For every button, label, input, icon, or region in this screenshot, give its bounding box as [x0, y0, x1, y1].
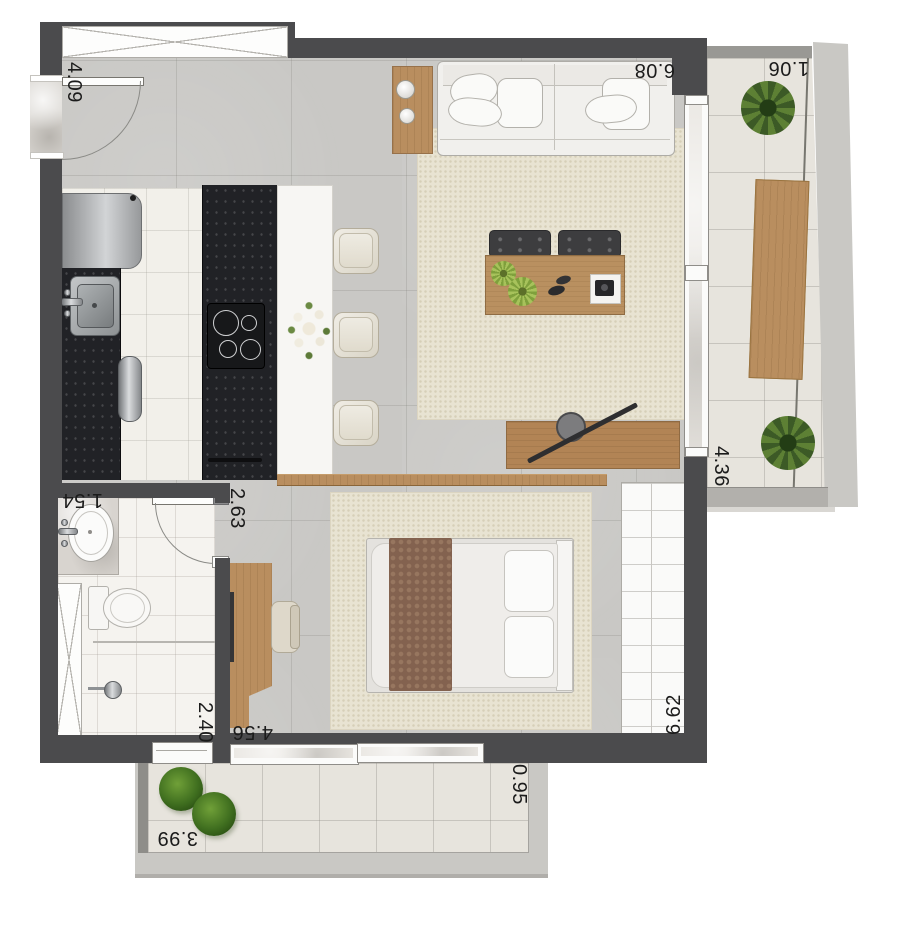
- window-cap-top: [685, 95, 708, 105]
- wall-top: [295, 38, 707, 58]
- dimension-label-living-top: 6.08: [634, 60, 675, 80]
- trash-bin: [118, 356, 142, 422]
- wall-bathroom-bedroom-lower: [215, 558, 230, 763]
- bedroom-balcony-door-sill: [234, 748, 353, 758]
- bathroom-faucet-knob-2: [61, 540, 68, 547]
- dimension-label-balcony-right-length: 4.36: [711, 446, 731, 487]
- wall-bottom-right: [482, 733, 707, 763]
- dimension-label-bedroom-top: 2.63: [227, 488, 247, 529]
- balcony-right-bottom-band: [707, 487, 828, 508]
- wall-right: [684, 455, 707, 763]
- potted-plant-top: [741, 81, 795, 135]
- shower-head: [104, 681, 122, 699]
- dimension-label-balcony-bottom-depth: 0.95: [509, 764, 529, 805]
- faucet-knob-1: [64, 289, 71, 296]
- entry-threshold-sill-top: [30, 75, 64, 82]
- cooktop: [207, 303, 265, 369]
- faucet-knob-2: [64, 310, 71, 317]
- bed-pillow-1: [504, 550, 554, 612]
- sofa-seat-divider: [554, 64, 555, 150]
- kitchen-faucet: [61, 298, 83, 306]
- pouf-1: [489, 230, 551, 258]
- wall-bathroom-left: [40, 483, 58, 763]
- sink-drain: [92, 303, 97, 308]
- wood-threshold-strip: [277, 474, 607, 486]
- bar-stool-3: [333, 400, 379, 446]
- dimension-label-balcony-right-width: 1.06: [768, 58, 809, 78]
- dimension-label-interior-right-length: 6.62: [664, 694, 684, 735]
- wall-pillar-top-right: [672, 42, 707, 95]
- bathroom-faucet-knob-1: [61, 519, 68, 526]
- bed-headboard: [556, 540, 573, 691]
- table-plant-2: [508, 277, 537, 306]
- bed-runner-blanket: [389, 538, 452, 691]
- burner-3: [219, 340, 237, 358]
- bathroom-window: [152, 742, 213, 764]
- floor-plan: 4.09 6.08 1.06 4.36 2.63 1.54 2.40 4.56 …: [0, 0, 898, 925]
- bathroom-window-line: [156, 750, 207, 751]
- toilet-seat: [110, 593, 145, 623]
- potted-plant-bottom: [761, 416, 815, 470]
- stool-seat: [339, 233, 373, 268]
- window-divider: [685, 265, 708, 281]
- service-shaft: [56, 583, 82, 737]
- island-flowers: [286, 298, 332, 362]
- entry-threshold-sill-bottom: [30, 152, 64, 159]
- bathroom-faucet: [58, 528, 78, 535]
- balcony-bench: [749, 179, 810, 380]
- dimension-label-bathroom-width: 1.54: [62, 490, 103, 510]
- vase-2: [399, 108, 415, 124]
- pouf-2: [558, 230, 621, 258]
- entry-threshold: [30, 75, 62, 158]
- dimension-label-bathroom-length: 2.40: [195, 702, 215, 743]
- burner-4: [240, 339, 261, 360]
- stool-seat: [339, 405, 373, 440]
- stool-seat: [339, 317, 373, 352]
- balcony-bottom-inner-edge: [138, 763, 148, 853]
- wall-left-upper: [40, 22, 62, 75]
- desk-chair-back: [290, 605, 300, 649]
- camera-lens: [601, 284, 608, 291]
- bar-stool-2: [333, 312, 379, 358]
- bush-2: [192, 792, 236, 836]
- bar-stool-1: [333, 228, 379, 274]
- refrigerator-handle: [130, 195, 136, 201]
- shower-partition: [93, 641, 215, 643]
- entry-closet: [62, 26, 288, 58]
- vase-1: [396, 80, 415, 99]
- bedroom-window-sill: [361, 747, 478, 756]
- wall-left-mid: [40, 158, 62, 483]
- refrigerator: [62, 193, 142, 269]
- balcony-right-edge: [707, 507, 835, 512]
- burner-2: [241, 315, 257, 331]
- sofa-pillow-2: [497, 78, 543, 128]
- bed-pillow-2: [504, 616, 554, 678]
- window-cap-bottom: [685, 447, 708, 457]
- dimension-label-bedroom-bottom: 4.56: [232, 722, 273, 742]
- bathroom-sink-drain: [88, 530, 92, 534]
- sofa-front-edge: [440, 139, 670, 140]
- oven-handle: [208, 458, 262, 462]
- dimension-label-balcony-bottom-length: 3.99: [157, 828, 198, 848]
- burner-1: [213, 310, 239, 336]
- dimension-label-entry-side: 4.09: [64, 62, 84, 103]
